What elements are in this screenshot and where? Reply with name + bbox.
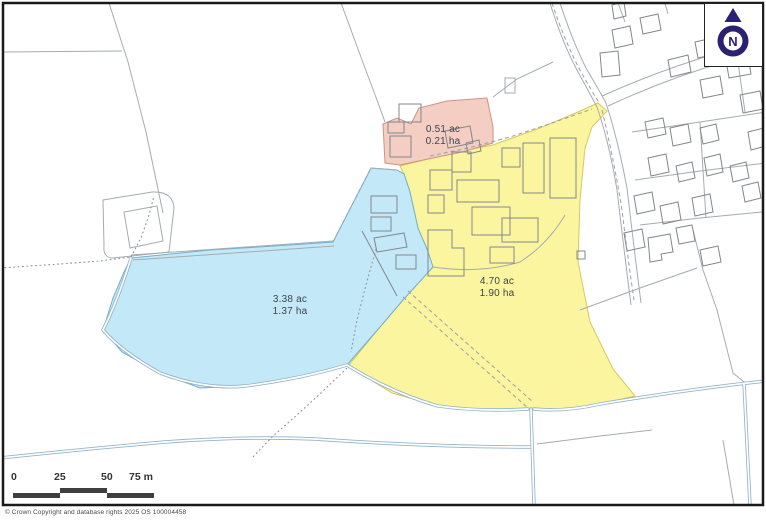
scale-label-25: 25 — [54, 471, 66, 483]
parcel-pink-label: 0.51 ac 0.21 ha — [403, 124, 483, 147]
parcel-pink-acres: 0.51 ac — [403, 124, 483, 136]
map-canvas: 3.38 ac 1.37 ha 4.70 ac 1.90 ha 0.51 ac … — [0, 0, 766, 520]
parcel-pink-hectares: 0.21 ha — [403, 136, 483, 148]
parcel-yellow-hectares: 1.90 ha — [457, 288, 537, 300]
parcel-blue-label: 3.38 ac 1.37 ha — [250, 294, 330, 317]
scale-segment-3 — [107, 493, 154, 498]
parcel-blue-acres: 3.38 ac — [250, 294, 330, 306]
scale-label-75: 75 m — [129, 471, 153, 483]
scale-label-50: 50 — [101, 471, 113, 483]
parcel-blue-hectares: 1.37 ha — [250, 306, 330, 318]
copyright-notice: © Crown Copyright and database rights 20… — [5, 509, 186, 516]
north-letter: N — [728, 34, 737, 49]
north-arrow-icon: N — [705, 4, 761, 65]
scale-segment-2 — [60, 488, 107, 493]
scale-segment-1 — [13, 493, 60, 498]
map-svg — [0, 0, 766, 520]
north-arrow: N — [704, 3, 763, 67]
parcel-yellow-acres: 4.70 ac — [457, 276, 537, 288]
parcels-layer — [103, 98, 635, 411]
parcel-yellow-label: 4.70 ac 1.90 ha — [457, 276, 537, 299]
scale-label-0: 0 — [11, 471, 17, 483]
